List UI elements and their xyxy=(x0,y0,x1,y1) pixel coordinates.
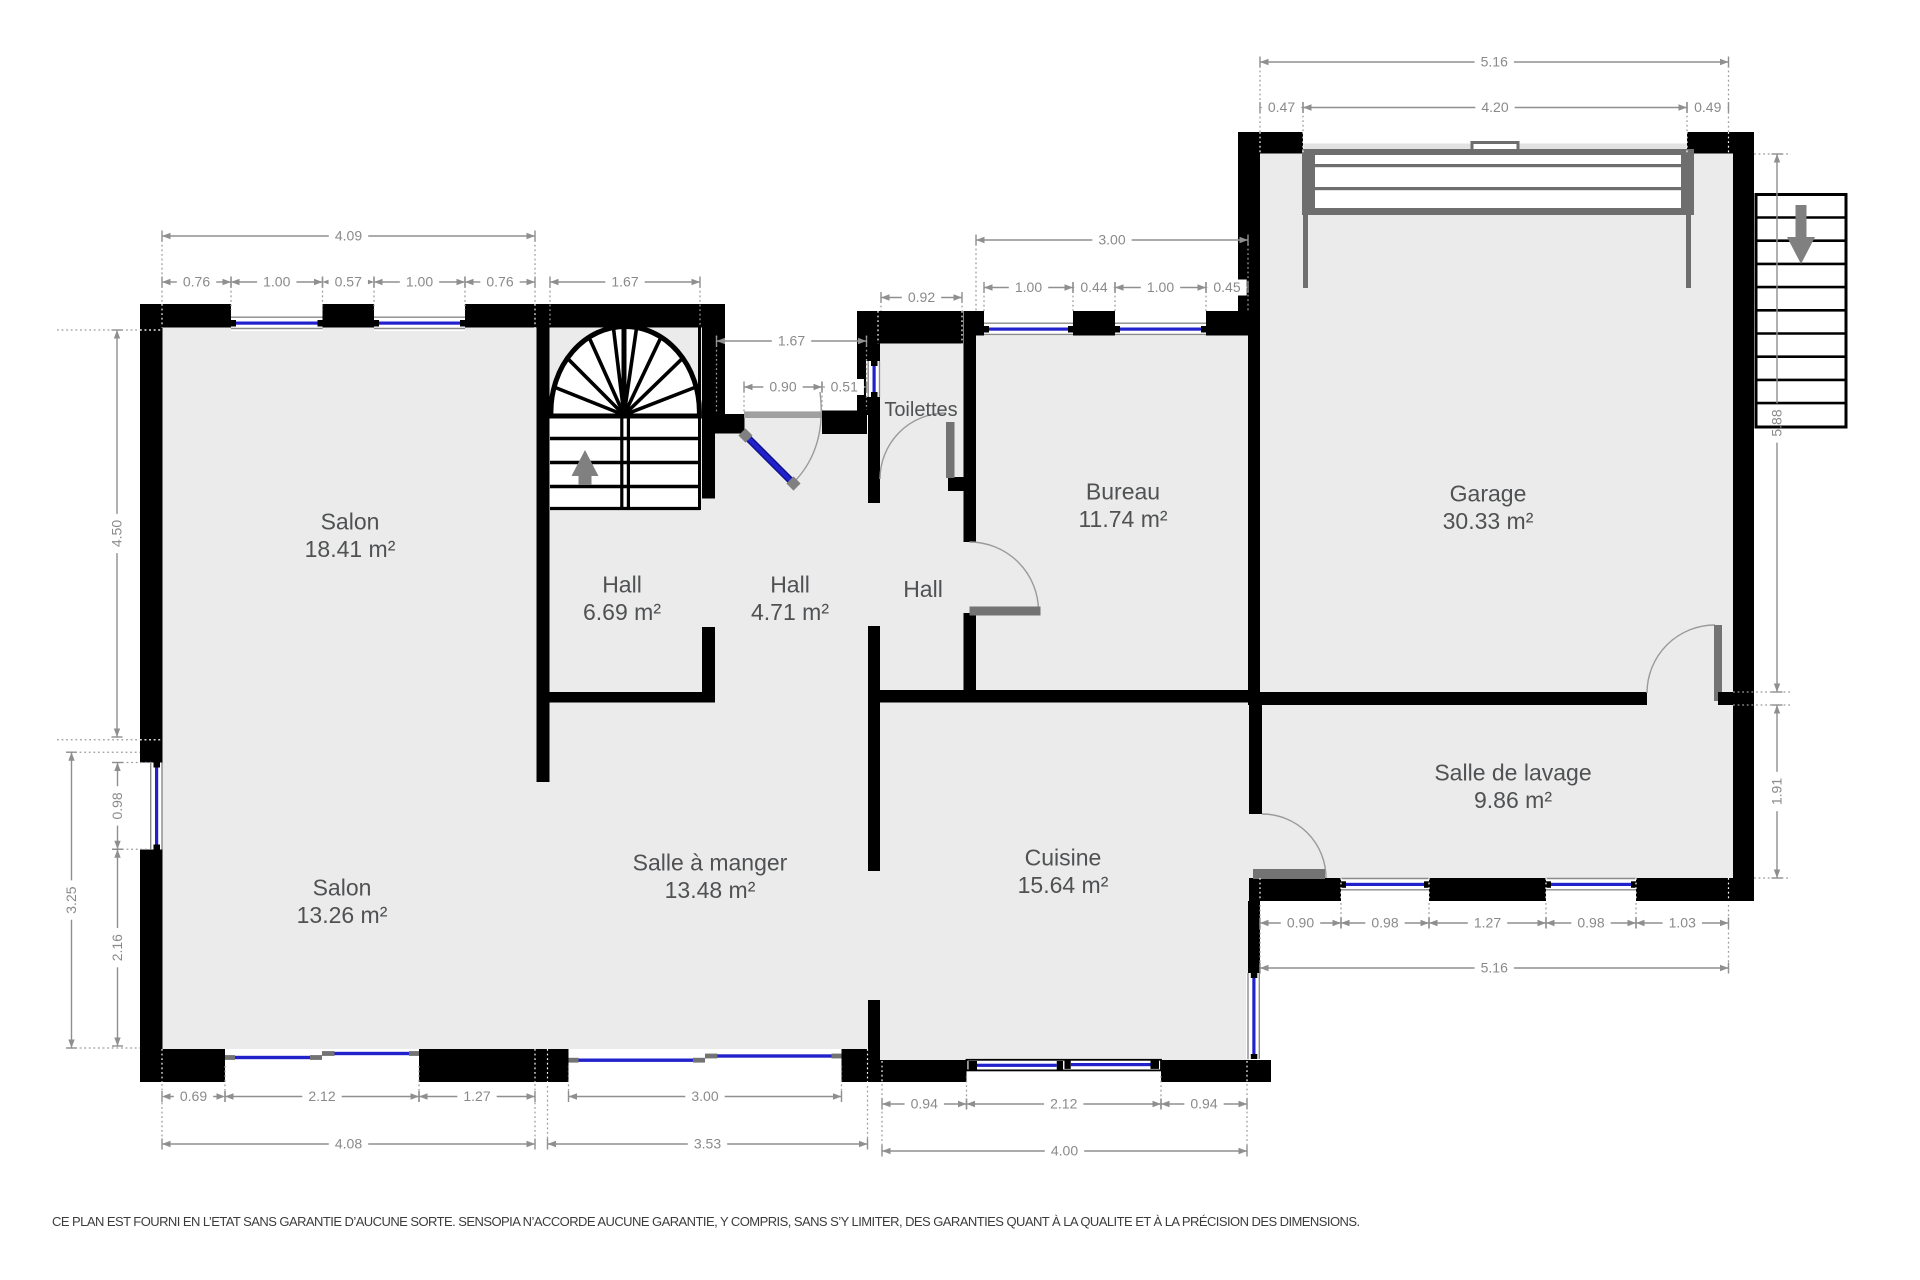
svg-text:3.00: 3.00 xyxy=(691,1088,718,1104)
svg-text:9.86 m²: 9.86 m² xyxy=(1474,787,1552,813)
svg-text:6.69 m²: 6.69 m² xyxy=(583,599,661,625)
svg-text:1.27: 1.27 xyxy=(1474,915,1501,931)
svg-text:1.00: 1.00 xyxy=(1015,279,1042,295)
svg-text:Hall: Hall xyxy=(903,576,943,602)
svg-text:0.44: 0.44 xyxy=(1080,279,1107,295)
svg-text:0.76: 0.76 xyxy=(183,274,210,290)
svg-text:2.12: 2.12 xyxy=(308,1088,335,1104)
svg-text:0.49: 0.49 xyxy=(1694,99,1721,115)
svg-text:Hall: Hall xyxy=(602,572,642,598)
svg-text:1.67: 1.67 xyxy=(778,333,805,349)
svg-text:0.98: 0.98 xyxy=(109,792,125,819)
svg-text:Salle à manger: Salle à manger xyxy=(633,850,788,876)
svg-text:4.50: 4.50 xyxy=(109,520,125,547)
svg-text:4.08: 4.08 xyxy=(335,1136,362,1152)
svg-text:Salon: Salon xyxy=(321,509,380,535)
svg-text:4.20: 4.20 xyxy=(1481,99,1508,115)
svg-text:4.09: 4.09 xyxy=(335,228,362,244)
svg-text:0.57: 0.57 xyxy=(335,274,362,290)
svg-text:0.47: 0.47 xyxy=(1268,99,1295,115)
svg-text:4.00: 4.00 xyxy=(1051,1143,1078,1159)
svg-text:18.41 m²: 18.41 m² xyxy=(305,536,396,562)
svg-text:4.71 m²: 4.71 m² xyxy=(751,599,829,625)
svg-text:0.94: 0.94 xyxy=(1190,1096,1217,1112)
svg-text:2.16: 2.16 xyxy=(109,934,125,961)
svg-text:0.51: 0.51 xyxy=(831,379,858,395)
svg-text:11.74 m²: 11.74 m² xyxy=(1078,506,1167,532)
svg-text:0.69: 0.69 xyxy=(180,1088,207,1104)
svg-text:1.27: 1.27 xyxy=(463,1088,490,1104)
svg-text:13.26 m²: 13.26 m² xyxy=(297,902,388,928)
svg-text:0.45: 0.45 xyxy=(1213,279,1240,295)
svg-text:Bureau: Bureau xyxy=(1086,479,1160,505)
svg-text:1.91: 1.91 xyxy=(1769,778,1785,805)
svg-text:1.00: 1.00 xyxy=(1147,279,1174,295)
svg-text:1.67: 1.67 xyxy=(611,274,638,290)
svg-text:1.00: 1.00 xyxy=(263,274,290,290)
svg-text:3.00: 3.00 xyxy=(1098,232,1125,248)
svg-text:3.25: 3.25 xyxy=(63,886,79,913)
svg-text:0.90: 0.90 xyxy=(769,379,796,395)
svg-text:Cuisine: Cuisine xyxy=(1025,845,1102,871)
svg-text:5.16: 5.16 xyxy=(1481,960,1508,976)
svg-text:5.88: 5.88 xyxy=(1769,409,1785,436)
svg-text:0.94: 0.94 xyxy=(911,1096,938,1112)
svg-text:CE PLAN EST FOURNI EN L’ETAT S: CE PLAN EST FOURNI EN L’ETAT SANS GARANT… xyxy=(52,1214,1360,1229)
svg-text:1.00: 1.00 xyxy=(406,274,433,290)
svg-text:Salon: Salon xyxy=(313,875,372,901)
svg-text:0.98: 0.98 xyxy=(1371,915,1398,931)
svg-text:Toilettes: Toilettes xyxy=(884,399,957,421)
svg-text:Hall: Hall xyxy=(770,572,810,598)
svg-text:1.03: 1.03 xyxy=(1669,915,1696,931)
svg-text:2.12: 2.12 xyxy=(1050,1096,1077,1112)
svg-text:0.90: 0.90 xyxy=(1287,915,1314,931)
svg-text:0.76: 0.76 xyxy=(486,274,513,290)
svg-text:5.16: 5.16 xyxy=(1481,54,1508,70)
svg-text:0.92: 0.92 xyxy=(908,289,935,305)
svg-text:3.53: 3.53 xyxy=(694,1136,721,1152)
svg-text:Salle de lavage: Salle de lavage xyxy=(1434,760,1591,786)
svg-text:15.64 m²: 15.64 m² xyxy=(1018,872,1109,898)
svg-text:0.98: 0.98 xyxy=(1577,915,1604,931)
svg-text:13.48 m²: 13.48 m² xyxy=(665,877,756,903)
svg-text:30.33 m²: 30.33 m² xyxy=(1443,508,1534,534)
svg-text:Garage: Garage xyxy=(1450,481,1527,507)
